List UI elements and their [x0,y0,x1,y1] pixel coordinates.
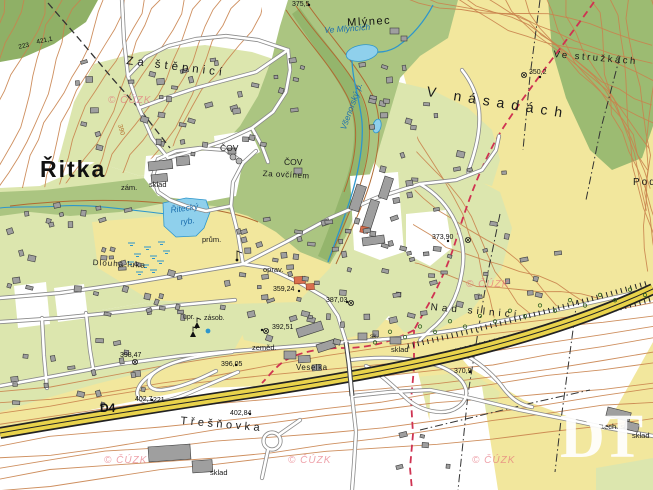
map-label-local-upr: upr. [183,314,195,321]
dt-logo: DT [560,406,640,468]
map-label-local-cov-east: ČOV [284,158,302,167]
map-label-local-zasob: zásob. [204,315,225,322]
map-label-elev-370-9: 370,9 [454,368,472,375]
map-label-local-sklad-zamek: sklad [149,181,167,189]
map-label-local-prum: prům. [202,236,221,244]
cuzk-watermark-1: © ČÚZK [466,279,509,290]
map-canvas[interactable]: ŘitkaMlýnecZa štěpnicíV násadáchVe struž… [0,0,653,490]
map-label-elev-387-03: 387,03 [326,297,347,304]
map-label-elev-375-5: 375,5 [292,1,310,8]
map-label-water-ritecky-ryb-line2: ryb. [180,216,195,226]
map-label-elev-402-84: 402,84 [230,410,251,417]
map-label-local-oprav: oprav. [263,266,283,274]
cuzk-watermark-0: © ČÚZK [108,95,151,106]
map-label-road-221: 221 [153,397,165,404]
map-label-road-d4: D4 [100,402,115,414]
cuzk-watermark-2: © ČÚZK [104,455,147,466]
map-label-local-veselka: Veselka [296,364,328,372]
map-label-area-pod: Pod [633,178,653,188]
map-label-elev-392-51: 392,51 [272,324,293,331]
map-graphics [0,0,653,490]
map-label-elev-350-2: 350,2 [529,69,547,76]
map-label-local-zam: zám. [121,184,137,192]
map-label-local-sk: sk. [370,334,378,341]
map-label-elev-402-7: 402,7 [135,396,153,403]
cuzk-watermark-3: © ČÚZK [288,455,331,466]
cuzk-watermark-4: © ČÚZK [472,455,515,466]
map-label-local-sklad-tresnovka: sklad [210,469,228,477]
map-label-town-ritka: Řitka [40,158,106,181]
map-label-contour-390: 390 [116,124,125,136]
map-label-elev-396-05: 396,05 [221,361,242,368]
map-label-local-cov-west: ČOV [220,144,238,153]
map-label-elev-359-24: 359,24 [273,286,294,293]
map-label-local-zemed: zeměd. [252,344,277,352]
map-label-elev-373-90: 373,90 [432,234,453,241]
map-label-elev-398-47: 398,47 [120,352,141,359]
map-label-local-sklad-dalnice: sklad [391,346,409,354]
